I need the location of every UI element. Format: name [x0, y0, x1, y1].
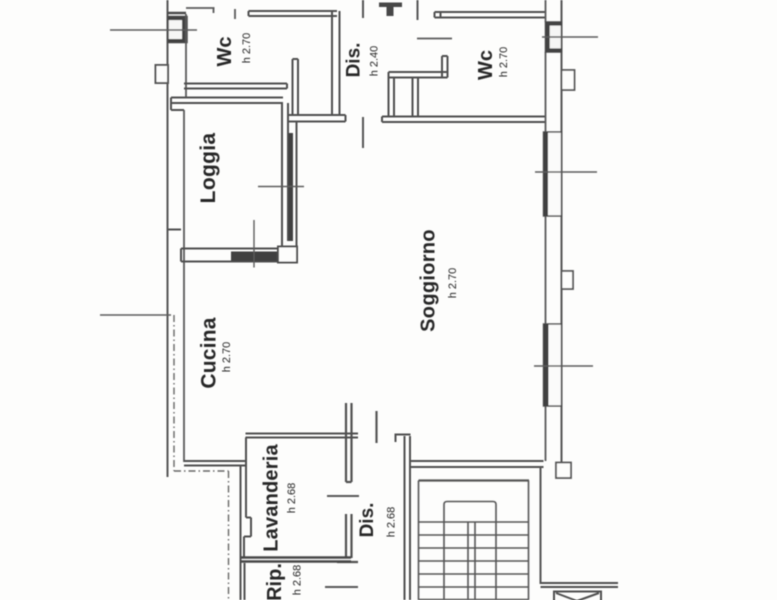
svg-text:Lavanderia: Lavanderia — [261, 444, 283, 552]
svg-text:h 2.68: h 2.68 — [386, 507, 398, 538]
svg-text:h 2.68: h 2.68 — [292, 565, 304, 596]
svg-text:Dis.: Dis. — [344, 43, 365, 78]
svg-text:Dis.: Dis. — [357, 503, 378, 538]
svg-text:h 2.68: h 2.68 — [286, 483, 298, 514]
svg-text:Rip.: Rip. — [264, 563, 286, 600]
svg-text:Soggiorno: Soggiorno — [418, 229, 440, 332]
svg-text:h 2.70: h 2.70 — [221, 342, 233, 373]
svg-text:Cucina: Cucina — [198, 317, 221, 388]
svg-text:h 2.70: h 2.70 — [447, 268, 459, 299]
svg-text:Wc: Wc — [214, 37, 236, 67]
svg-text:Loggia: Loggia — [197, 133, 220, 204]
svg-text:h 2.40: h 2.40 — [369, 46, 381, 77]
svg-text:h 2.70: h 2.70 — [241, 33, 253, 64]
svg-text:Wc: Wc — [475, 50, 497, 80]
svg-text:h 2.70: h 2.70 — [498, 47, 510, 78]
